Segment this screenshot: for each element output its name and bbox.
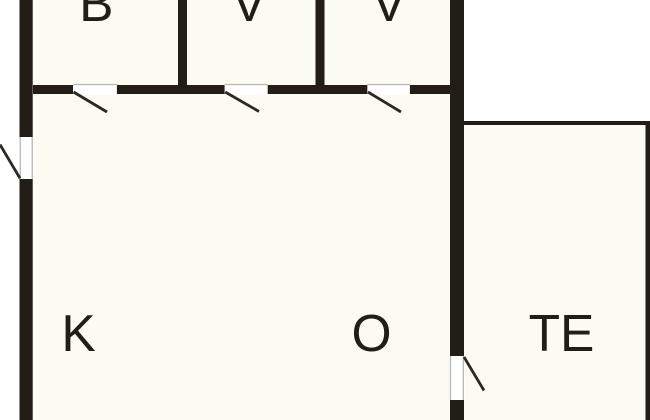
svg-text:B: B	[79, 0, 113, 32]
svg-text:TE: TE	[529, 304, 595, 362]
svg-text:K: K	[61, 304, 95, 362]
svg-text:V: V	[372, 0, 407, 32]
svg-text:V: V	[232, 0, 267, 32]
svg-text:O: O	[351, 304, 391, 362]
